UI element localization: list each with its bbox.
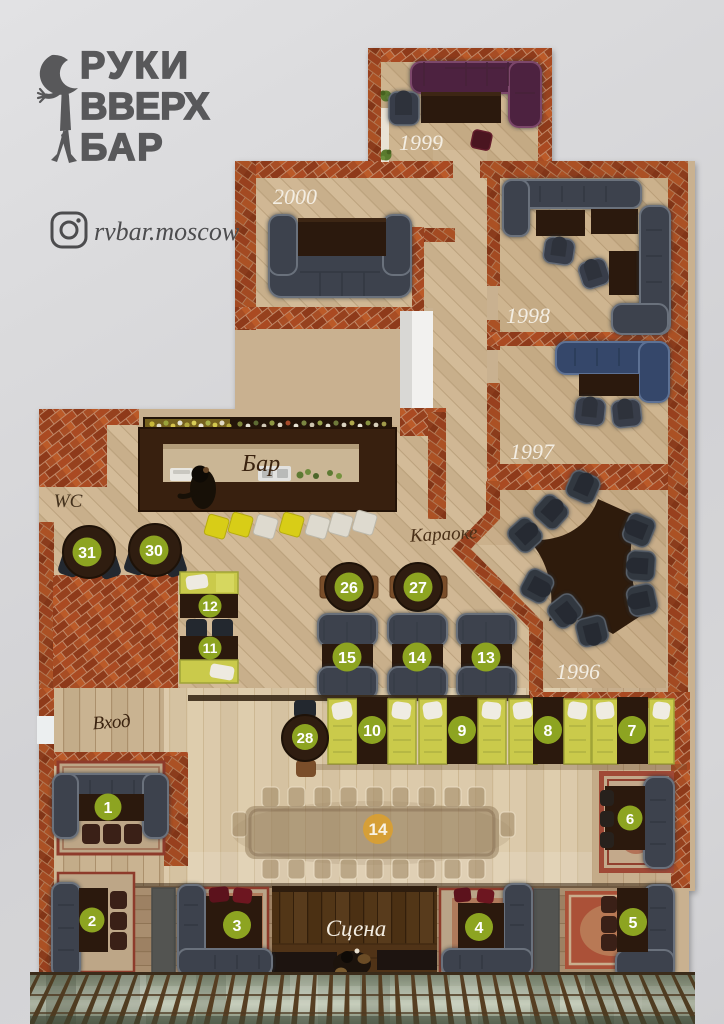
svg-text:БАР: БАР: [80, 127, 165, 169]
svg-text:26: 26: [340, 580, 358, 597]
svg-text:8: 8: [544, 723, 553, 740]
svg-text:2000: 2000: [273, 184, 317, 209]
svg-text:1998: 1998: [506, 303, 550, 328]
svg-text:7: 7: [628, 723, 637, 740]
svg-text:27: 27: [409, 580, 427, 597]
svg-text:Бар: Бар: [241, 451, 280, 477]
svg-text:30: 30: [145, 543, 163, 560]
svg-text:3: 3: [233, 918, 242, 935]
svg-text:1996: 1996: [556, 659, 600, 684]
svg-text:1997: 1997: [510, 439, 555, 464]
svg-text:9: 9: [458, 723, 467, 740]
svg-text:12: 12: [202, 598, 218, 614]
svg-text:13: 13: [477, 650, 495, 667]
svg-text:11: 11: [203, 640, 218, 656]
svg-text:28: 28: [297, 730, 314, 747]
svg-text:rvbar.moscow: rvbar.moscow: [94, 217, 240, 246]
svg-text:Вход: Вход: [92, 711, 132, 735]
svg-text:Караоке: Караоке: [408, 522, 477, 547]
svg-text:15: 15: [338, 650, 356, 667]
svg-text:2: 2: [88, 913, 96, 930]
svg-text:5: 5: [629, 915, 638, 932]
svg-text:6: 6: [626, 811, 634, 828]
svg-text:ВВЕРХ: ВВЕРХ: [80, 86, 210, 128]
svg-text:РУКИ: РУКИ: [80, 45, 191, 87]
svg-text:31: 31: [78, 545, 96, 562]
svg-text:1999: 1999: [399, 130, 443, 155]
svg-text:14: 14: [408, 650, 426, 667]
svg-text:1: 1: [104, 800, 113, 817]
svg-text:WC: WC: [54, 491, 83, 512]
svg-text:10: 10: [363, 723, 381, 740]
svg-text:Сцена: Сцена: [326, 916, 387, 941]
svg-text:14: 14: [369, 820, 388, 839]
svg-text:4: 4: [475, 920, 484, 937]
